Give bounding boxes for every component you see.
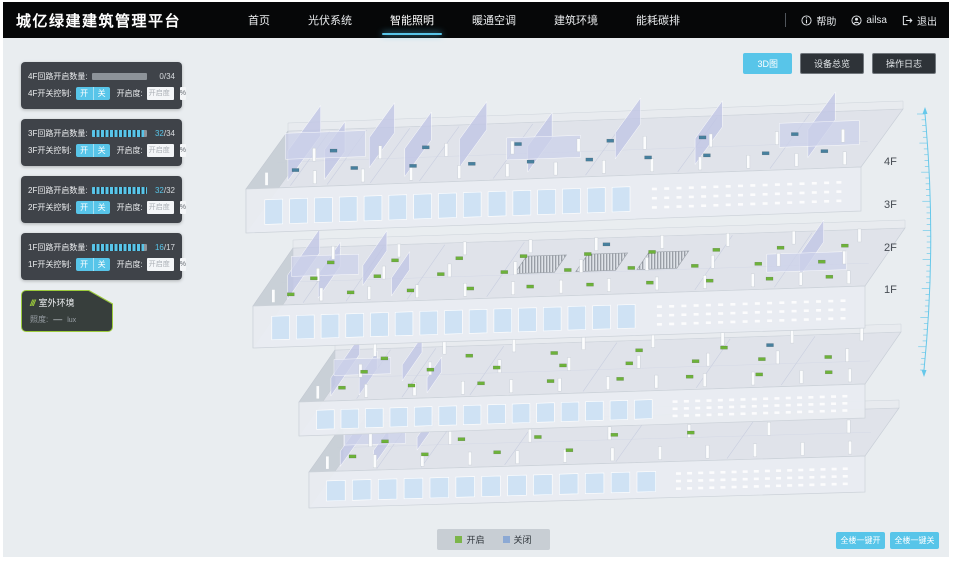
operation-log-button[interactable]: 操作日志: [872, 53, 936, 74]
circuit-progress-bar: [92, 73, 147, 80]
switch-on-button[interactable]: 开: [76, 258, 93, 271]
percent-apply-button[interactable]: %: [180, 201, 186, 214]
floor-label-1f[interactable]: 1F: [884, 284, 897, 296]
help-label: 帮助: [816, 13, 836, 28]
floor-panel-1f: 1F回路开启数量: 16/17 1F开关控制: 开 关 开启度: %: [21, 233, 182, 280]
outdoor-env-panel: /// 室外环境 照度: — lux: [21, 290, 113, 332]
switch-on-button[interactable]: 开: [76, 201, 93, 214]
circuit-count-value: 0/34: [151, 72, 175, 81]
user-menu[interactable]: ailsa: [851, 15, 887, 26]
openness-label: 开启度:: [117, 145, 143, 156]
illuminance-label: 照度:: [30, 314, 48, 325]
logout-button[interactable]: 退出: [902, 13, 937, 28]
floor-panel-3f: 3F回路开启数量: 32/34 3F开关控制: 开 关 开启度: %: [21, 119, 182, 166]
status-legend: 开启 关闭: [437, 529, 550, 550]
circuit-count-label: 4F回路开启数量:: [28, 71, 88, 82]
switch-on-button[interactable]: 开: [76, 87, 93, 100]
switch-button-group: 开 关: [76, 144, 110, 157]
openness-input[interactable]: [147, 144, 174, 157]
all-floors-on-button[interactable]: 全楼一键开: [836, 532, 885, 549]
legend-off-swatch: [503, 536, 510, 543]
header-divider: [785, 13, 786, 27]
openness-input[interactable]: [147, 87, 174, 100]
user-avatar-icon: [851, 15, 862, 26]
switch-control-label: 3F开关控制:: [28, 145, 72, 156]
switch-off-button[interactable]: 关: [93, 258, 110, 271]
switch-on-button[interactable]: 开: [76, 144, 93, 157]
illuminance-unit: lux: [67, 317, 76, 324]
circuit-count-label: 1F回路开启数量:: [28, 242, 88, 253]
switch-button-group: 开 关: [76, 87, 110, 100]
floor-zoom-ruler: [917, 107, 931, 377]
view-toolbar: 3D图 设备总览 操作日志: [743, 53, 936, 74]
circuit-count-value: 16/17: [151, 243, 175, 252]
floor-label-3f[interactable]: 3F: [884, 199, 897, 211]
outdoor-env-title: 室外环境: [39, 296, 75, 309]
circuit-progress-bar: [92, 130, 147, 137]
legend-on-swatch: [455, 536, 462, 543]
openness-input[interactable]: [147, 201, 174, 214]
legend-off-item: 关闭: [503, 533, 532, 546]
switch-off-button[interactable]: 关: [93, 144, 110, 157]
percent-apply-button[interactable]: %: [180, 87, 186, 100]
nav-item-smart-lighting[interactable]: 智能照明: [388, 2, 436, 40]
brand-title: 城亿绿建建筑管理平台: [16, 10, 181, 31]
legend-off-label: 关闭: [514, 533, 532, 546]
circuit-count-label: 2F回路开启数量:: [28, 185, 88, 196]
nav-item-pv-system[interactable]: 光伏系统: [306, 2, 354, 40]
logout-icon: [902, 15, 913, 26]
view-3d-button[interactable]: 3D图: [743, 53, 792, 74]
nav-item-building-env[interactable]: 建筑环境: [552, 2, 600, 40]
device-overview-button[interactable]: 设备总览: [800, 53, 864, 74]
switch-button-group: 开 关: [76, 201, 110, 214]
nav-item-hvac[interactable]: 暖通空调: [470, 2, 518, 40]
switch-off-button[interactable]: 关: [93, 201, 110, 214]
switch-button-group: 开 关: [76, 258, 110, 271]
logout-label: 退出: [917, 13, 937, 28]
circuit-count-value: 32/34: [151, 129, 175, 138]
circuit-count-value: 32/32: [151, 186, 175, 195]
percent-apply-button[interactable]: %: [180, 144, 186, 157]
help-button[interactable]: 帮助: [801, 13, 836, 28]
top-nav-bar: 城亿绿建建筑管理平台 首页 光伏系统 智能照明 暖通空调 建筑环境 能耗碳排 帮…: [3, 2, 949, 38]
switch-off-button[interactable]: 关: [93, 87, 110, 100]
switch-control-label: 4F开关控制:: [28, 88, 72, 99]
circuit-progress-bar: [92, 244, 147, 251]
global-control-buttons: 全楼一键开 全楼一键关: [836, 532, 939, 549]
switch-control-label: 1F开关控制:: [28, 259, 72, 270]
openness-label: 开启度:: [117, 202, 143, 213]
slashes-icon: ///: [30, 298, 35, 308]
main-nav: 首页 光伏系统 智能照明 暖通空调 建筑环境 能耗碳排: [229, 2, 699, 40]
floor-label-4f[interactable]: 4F: [884, 156, 897, 168]
percent-apply-button[interactable]: %: [180, 258, 186, 271]
legend-on-label: 开启: [466, 533, 484, 546]
circuit-count-label: 3F回路开启数量:: [28, 128, 88, 139]
all-floors-off-button[interactable]: 全楼一键关: [890, 532, 939, 549]
header-right-tools: 帮助 ailsa 退出: [785, 13, 937, 28]
nav-item-energy-carbon[interactable]: 能耗碳排: [634, 2, 682, 40]
app-stage: 城亿绿建建筑管理平台 首页 光伏系统 智能照明 暖通空调 建筑环境 能耗碳排 帮…: [3, 2, 949, 557]
openness-label: 开启度:: [117, 88, 143, 99]
floor-label-2f[interactable]: 2F: [884, 242, 897, 254]
openness-input[interactable]: [147, 258, 174, 271]
floor-panel-4f: 4F回路开启数量: 0/34 4F开关控制: 开 关 开启度: %: [21, 62, 182, 109]
nav-item-home[interactable]: 首页: [246, 2, 272, 40]
username-label: ailsa: [866, 15, 887, 26]
circuit-progress-bar: [92, 187, 147, 194]
illuminance-value: —: [53, 314, 62, 324]
switch-control-label: 2F开关控制:: [28, 202, 72, 213]
legend-on-item: 开启: [455, 533, 484, 546]
floor-panel-2f: 2F回路开启数量: 32/32 2F开关控制: 开 关 开启度: %: [21, 176, 182, 223]
info-circle-icon: [801, 15, 812, 26]
openness-label: 开启度:: [117, 259, 143, 270]
